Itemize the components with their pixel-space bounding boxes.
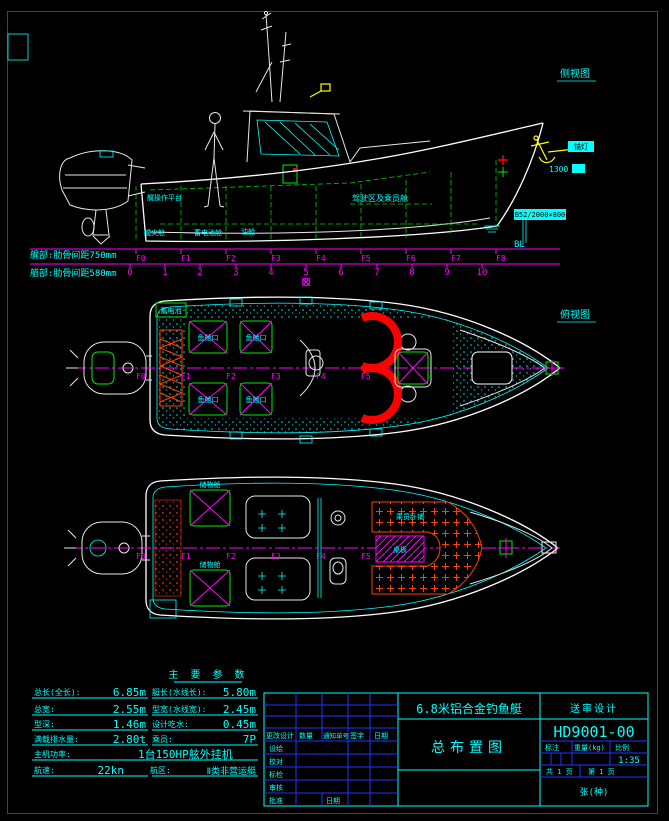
spec-label: 航速:	[34, 765, 55, 775]
spec-label: 乘员:	[152, 734, 173, 744]
spec-value: 6.85m	[113, 686, 146, 699]
below-deck-plan-view: 储物舱 储物舱 乘员卧铺 桌板 F0 F1 F2 F3	[64, 477, 560, 619]
baseline-label: BL	[514, 240, 525, 250]
role-label: 标检	[269, 770, 283, 779]
mast-antenna-icon	[256, 11, 330, 102]
frame-label: F6	[406, 254, 416, 263]
side-view: 驾驶区及乘员舱 艉操作平台 艉尖舱 蓄电池舱 油舱 锚灯 1300 B52/20…	[60, 11, 596, 245]
frame-label: F5	[361, 552, 371, 561]
hull-profile	[136, 123, 543, 241]
battery-label: 蓄电池	[161, 306, 182, 315]
fish-hatch-label: 鱼舱口	[198, 395, 219, 404]
frame-label: F4	[316, 254, 326, 263]
frame-label: F4	[316, 372, 326, 381]
fish-hatch-label: 鱼舱口	[246, 333, 267, 342]
plan-view-label: 俯视图	[560, 308, 590, 321]
sheet-note: 张(种)	[580, 786, 609, 798]
storage-lockers: 储物舱 储物舱	[190, 480, 230, 606]
rev-change-label: 更改设计	[266, 731, 294, 740]
frame-label: F0	[136, 552, 146, 561]
frame-label: F1	[181, 372, 191, 381]
spec-value: 1台150HP舷外挂机	[138, 747, 233, 761]
frame-label: F3	[271, 372, 281, 381]
spec-label: 总宽:	[34, 704, 55, 714]
cabin-label: 驾驶区及乘员舱	[352, 193, 408, 203]
role-label: 批准	[269, 796, 283, 805]
approve-date-label: 日期	[326, 797, 340, 805]
spec-label: 设计吃水:	[152, 719, 189, 729]
role-label: 审核	[269, 783, 283, 792]
spec-value: 0.45m	[223, 718, 256, 731]
frame-label: F4	[316, 552, 326, 561]
weight-label: 重量(kg)	[574, 744, 605, 752]
spec-label: 型深:	[34, 720, 55, 729]
page-number: 第 1 页	[588, 767, 615, 776]
frame-note-fwd: 艏部:肋骨间距580mm	[30, 267, 117, 279]
berth-label: 乘员卧铺	[396, 512, 424, 521]
station-label: 1	[162, 268, 167, 278]
spec-value: 5.80m	[223, 686, 256, 699]
design-stage: 送审设计	[570, 702, 618, 715]
station-label: 0	[127, 268, 132, 278]
midship-symbol	[302, 278, 310, 286]
frame-label: F7	[451, 254, 461, 263]
rev-qty-label: 数量	[299, 731, 313, 740]
spec-title: 主 要 参 数	[168, 668, 247, 681]
title-block: 更改设计 数量 通知单号 签字 日期 设绘 校对 标检 审核 批准 日期 6.8…	[264, 693, 648, 806]
compartment-label-2: 蓄电池舱	[194, 228, 222, 237]
frame-label: F2	[226, 552, 236, 561]
frame-label: F1	[181, 254, 191, 263]
scale-value: 1:35	[618, 756, 640, 766]
scale-label: 比例	[615, 743, 629, 752]
role-label: 设绘	[269, 744, 283, 753]
svg-text:B52/2000×800: B52/2000×800	[515, 211, 566, 219]
mark-label: 标注	[545, 743, 559, 752]
svg-text:锚灯: 锚灯	[574, 142, 588, 151]
cad-canvas[interactable]: 驾驶区及乘员舱 艉操作平台 艉尖舱 蓄电池舱 油舱 锚灯 1300 B52/20…	[0, 0, 669, 821]
frame-label: F3	[271, 254, 281, 263]
pages-total: 共 1 页	[546, 767, 573, 776]
frame-ruler: 艉部:肋骨间距750mm 艏部:肋骨间距580mm BL F0 F1 F2 F3…	[30, 240, 560, 286]
spec-value: 7P	[243, 733, 257, 746]
spec-value: 2.80t	[113, 733, 146, 746]
spec-value: 1.46m	[113, 718, 146, 731]
spec-label: 艇长(水线长):	[152, 687, 206, 697]
fish-hatch-label: 鱼舱口	[198, 333, 219, 342]
station-label: 6	[338, 268, 343, 278]
spec-value: 2.45m	[223, 703, 256, 716]
frame-label: F3	[271, 552, 281, 561]
station-label: 9	[444, 268, 449, 278]
locker-label: 储物舱	[200, 560, 221, 569]
spec-label: 满载排水量:	[34, 734, 79, 744]
spec-table: 主 要 参 数 总长(全长): 6.85m 艇长(水线长): 5.80m 总宽:…	[32, 668, 258, 777]
stern-platform-label: 艉操作平台	[147, 193, 182, 202]
bulkhead-line	[318, 498, 321, 598]
spec-value: 2.55m	[113, 703, 146, 716]
anchor-spec-tag[interactable]: B52/2000×800	[514, 209, 566, 220]
frame-label: F0	[136, 254, 146, 263]
rev-sign-label: 签字	[350, 731, 364, 740]
bow-hatch	[472, 352, 512, 384]
dimension-highlight[interactable]	[572, 164, 585, 173]
spec-value: 22kn	[98, 764, 125, 777]
cad-sheet: 驾驶区及乘员舱 艉操作平台 艉尖舱 蓄电池舱 油舱 锚灯 1300 B52/20…	[0, 0, 669, 821]
station-label: 5	[303, 268, 308, 278]
port-light-symbol	[498, 155, 508, 165]
person-figure	[204, 113, 224, 208]
rev-notice-label: 通知单号	[323, 731, 350, 740]
station-label: 3	[233, 268, 238, 278]
compartment-label-1: 艉尖舱	[144, 228, 165, 237]
deck-plan-view: 蓄电池 鱼舱口 鱼舱口 鱼舱口 鱼舱口	[66, 297, 596, 443]
frame-label: F8	[496, 254, 506, 263]
berth-area: 乘员卧铺 桌板	[372, 502, 482, 594]
frame-label: F2	[226, 254, 236, 263]
frame-label: F2	[226, 372, 236, 381]
station-label: 7	[374, 268, 379, 278]
fixtures	[330, 511, 346, 584]
station-label: 4	[268, 268, 273, 278]
spec-label: 型宽(水线宽):	[152, 704, 206, 714]
drawing-number: HD9001-00	[553, 723, 634, 741]
frame-label: F5	[361, 254, 371, 263]
spec-label: 航区:	[150, 765, 171, 775]
fish-hatch-label: 鱼舱口	[246, 395, 267, 404]
wheelhouse	[243, 111, 350, 183]
frame-label: F5	[361, 372, 371, 381]
anchor-light-tag[interactable]: 锚灯	[568, 141, 594, 152]
station-label: 10	[477, 268, 488, 278]
spec-label: 总长(全长):	[34, 687, 80, 697]
product-name: 6.8米铝合金钓鱼艇	[416, 701, 522, 716]
spec-label: 主机功率:	[34, 749, 71, 759]
starboard-light-symbol	[498, 167, 508, 177]
table-label: 桌板	[393, 545, 407, 554]
frame-label: F1	[181, 552, 191, 561]
locker-label: 储物舱	[200, 480, 221, 489]
bow-dimension: 1300	[549, 165, 568, 174]
station-label: 2	[197, 268, 202, 278]
zone-marker-box	[8, 34, 28, 60]
spec-value: Ⅱ类非营运艇	[207, 765, 256, 777]
mast-light-icon	[321, 84, 330, 91]
role-label: 校对	[269, 757, 283, 766]
compartment-label-3: 油舱	[241, 227, 255, 236]
side-view-label: 侧视图	[560, 67, 590, 80]
outboard-motor-icon	[60, 151, 145, 244]
rev-date-label: 日期	[374, 732, 388, 740]
frame-label: F0	[136, 372, 146, 381]
station-label: 8	[409, 268, 414, 278]
drawing-title: 总布置图	[431, 740, 507, 756]
frame-note-aft: 艉部:肋骨间距750mm	[30, 249, 117, 261]
